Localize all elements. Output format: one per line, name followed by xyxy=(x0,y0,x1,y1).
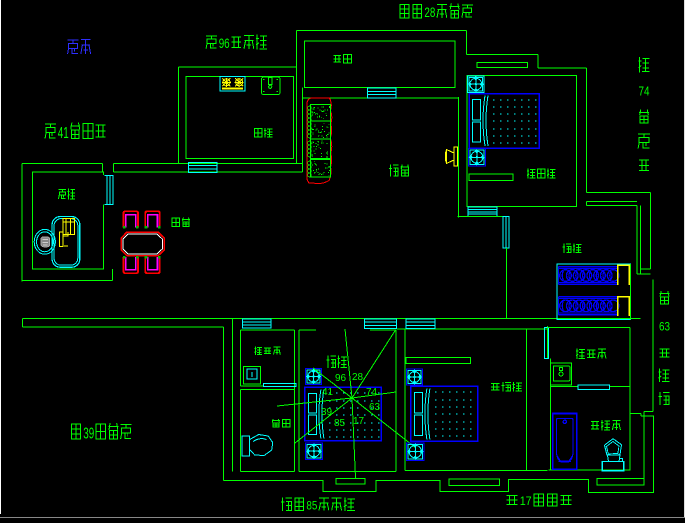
svg-text:74: 74 xyxy=(366,387,378,398)
svg-text:39: 39 xyxy=(321,407,333,418)
svg-text:85: 85 xyxy=(334,418,346,429)
svg-text:28: 28 xyxy=(352,372,364,383)
svg-text:17: 17 xyxy=(520,495,532,508)
svg-text:74: 74 xyxy=(639,85,650,99)
svg-text:85: 85 xyxy=(306,499,317,513)
svg-text:17: 17 xyxy=(353,416,365,427)
svg-text:39: 39 xyxy=(83,425,94,442)
svg-text:28: 28 xyxy=(424,5,435,20)
svg-text:96: 96 xyxy=(335,373,347,384)
svg-text:63: 63 xyxy=(369,402,381,413)
svg-text:41: 41 xyxy=(58,125,69,142)
svg-text:41: 41 xyxy=(322,387,334,398)
svg-text:96: 96 xyxy=(219,36,230,51)
svg-text:63: 63 xyxy=(659,321,670,334)
